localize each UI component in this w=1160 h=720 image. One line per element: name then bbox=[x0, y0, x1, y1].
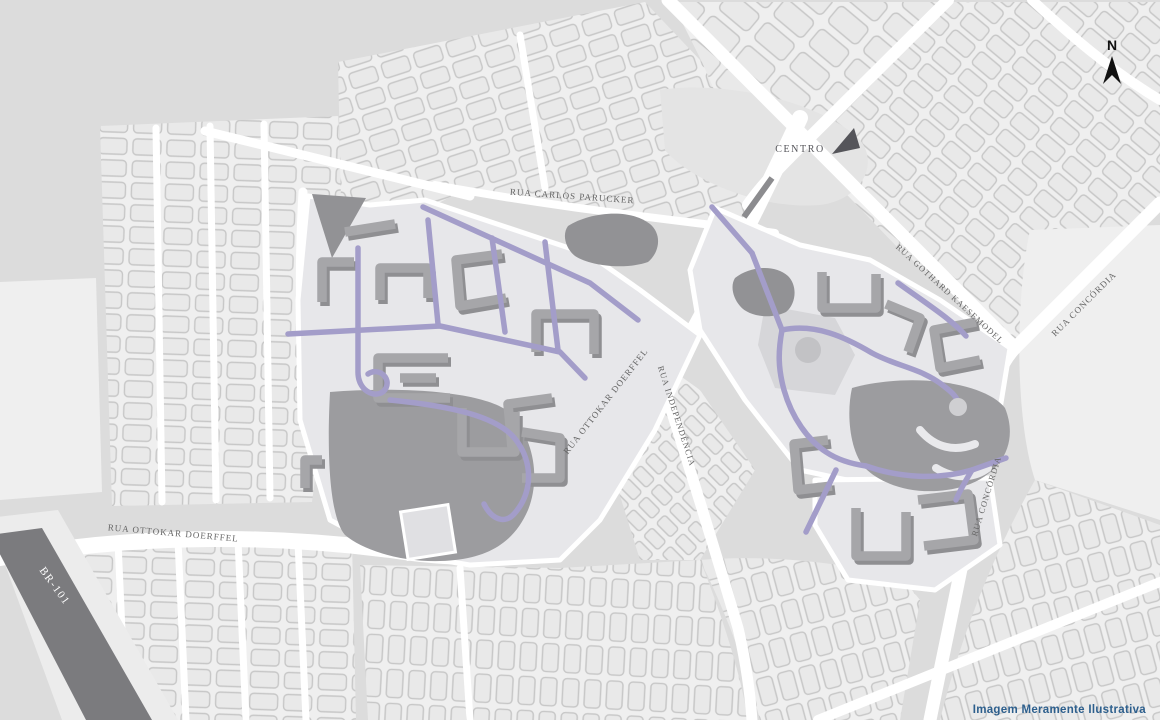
centro-label: CENTRO bbox=[775, 144, 825, 155]
disclaimer-text: Imagem Meramente Ilustrativa bbox=[973, 704, 1147, 716]
illustrative-map: RUA CARLOS PARUCKER RUA GOTHARD KAESEMOD… bbox=[0, 0, 1160, 720]
small-roundabout-circle bbox=[949, 398, 967, 416]
rotated-parcel bbox=[401, 505, 456, 560]
roundabout-circle bbox=[795, 337, 821, 363]
north-letter: N bbox=[1107, 37, 1117, 53]
map-canvas: RUA CARLOS PARUCKER RUA GOTHARD KAESEMOD… bbox=[0, 0, 1160, 720]
